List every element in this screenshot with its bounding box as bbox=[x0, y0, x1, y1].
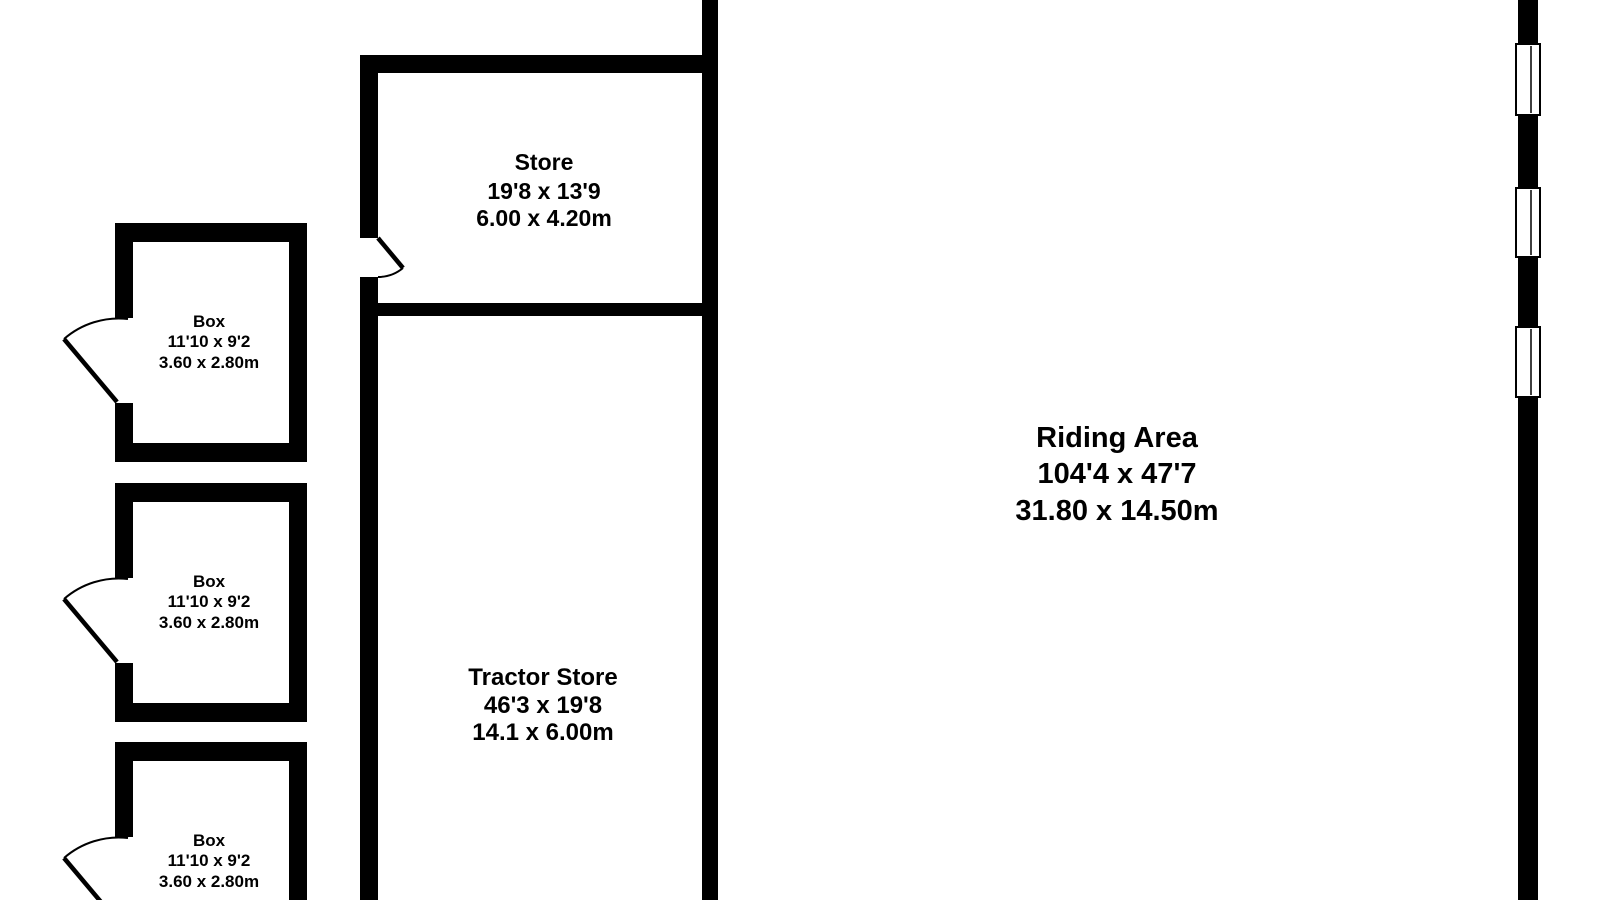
window3-frame bbox=[1516, 327, 1540, 397]
box1-metric-dims: 3.60 x 2.80m bbox=[159, 353, 259, 372]
box1-right-wall bbox=[289, 223, 307, 462]
middle-right-wall bbox=[702, 0, 718, 900]
store-left-wall-lower bbox=[360, 277, 378, 900]
box3-imperial-dims: 11'10 x 9'2 bbox=[168, 851, 251, 870]
box2-right-wall bbox=[289, 483, 307, 722]
store-tractor-divider-wall bbox=[378, 303, 708, 316]
store-left-wall-upper bbox=[360, 55, 378, 238]
box1-imperial-dims: 11'10 x 9'2 bbox=[168, 332, 251, 351]
box2-metric-dims: 3.60 x 2.80m bbox=[159, 613, 259, 632]
box2-door-icon bbox=[64, 578, 128, 662]
box1-bottom-wall bbox=[115, 443, 307, 462]
window2-frame bbox=[1516, 188, 1540, 257]
tractor-store-name: Tractor Store bbox=[468, 664, 617, 691]
box3-door-icon bbox=[64, 837, 128, 900]
floorplan-svg: Box 11'10 x 9'2 3.60 x 2.80m Box 11'10 x… bbox=[0, 0, 1600, 900]
store-imperial-dims: 19'8 x 13'9 bbox=[487, 178, 600, 204]
box2-bottom-wall bbox=[115, 703, 307, 722]
room-box-2: Box 11'10 x 9'2 3.60 x 2.80m bbox=[64, 483, 307, 722]
box2-top-wall bbox=[115, 483, 307, 502]
window-icon-1 bbox=[1516, 44, 1540, 115]
riding-area-right-wall bbox=[1518, 0, 1538, 900]
box1-top-wall bbox=[115, 223, 307, 242]
store-door-icon bbox=[378, 238, 403, 277]
room-riding-area: Riding Area 104'4 x 47'7 31.80 x 14.50m bbox=[1015, 0, 1540, 900]
box1-door-icon bbox=[64, 318, 128, 402]
box1-name: Box bbox=[193, 312, 226, 331]
middle-building: Store 19'8 x 13'9 6.00 x 4.20m Tractor S… bbox=[360, 0, 718, 900]
floorplan: Box 11'10 x 9'2 3.60 x 2.80m Box 11'10 x… bbox=[0, 0, 1600, 900]
box2-name: Box bbox=[193, 572, 226, 591]
window-icon-3 bbox=[1516, 327, 1540, 397]
box3-name: Box bbox=[193, 831, 226, 850]
store-top-wall bbox=[360, 55, 702, 73]
box3-top-wall bbox=[115, 742, 307, 761]
riding-area-name: Riding Area bbox=[1036, 422, 1199, 454]
window-icon-2 bbox=[1516, 188, 1540, 257]
box2-imperial-dims: 11'10 x 9'2 bbox=[168, 592, 251, 611]
tractor-store-imperial-dims: 46'3 x 19'8 bbox=[484, 692, 602, 719]
box1-left-wall-upper bbox=[115, 223, 133, 318]
store-metric-dims: 6.00 x 4.20m bbox=[476, 205, 612, 231]
box3-right-wall bbox=[289, 742, 307, 900]
room-box-1: Box 11'10 x 9'2 3.60 x 2.80m bbox=[64, 223, 307, 462]
riding-area-metric-dims: 31.80 x 14.50m bbox=[1015, 495, 1218, 527]
room-box-3: Box 11'10 x 9'2 3.60 x 2.80m bbox=[64, 742, 307, 900]
box3-metric-dims: 3.60 x 2.80m bbox=[159, 872, 259, 891]
tractor-store-metric-dims: 14.1 x 6.00m bbox=[472, 719, 613, 746]
box3-left-wall-upper bbox=[115, 742, 133, 837]
window1-frame bbox=[1516, 44, 1540, 115]
box2-left-wall-upper bbox=[115, 483, 133, 578]
store-name: Store bbox=[515, 149, 574, 175]
riding-area-imperial-dims: 104'4 x 47'7 bbox=[1038, 458, 1197, 490]
